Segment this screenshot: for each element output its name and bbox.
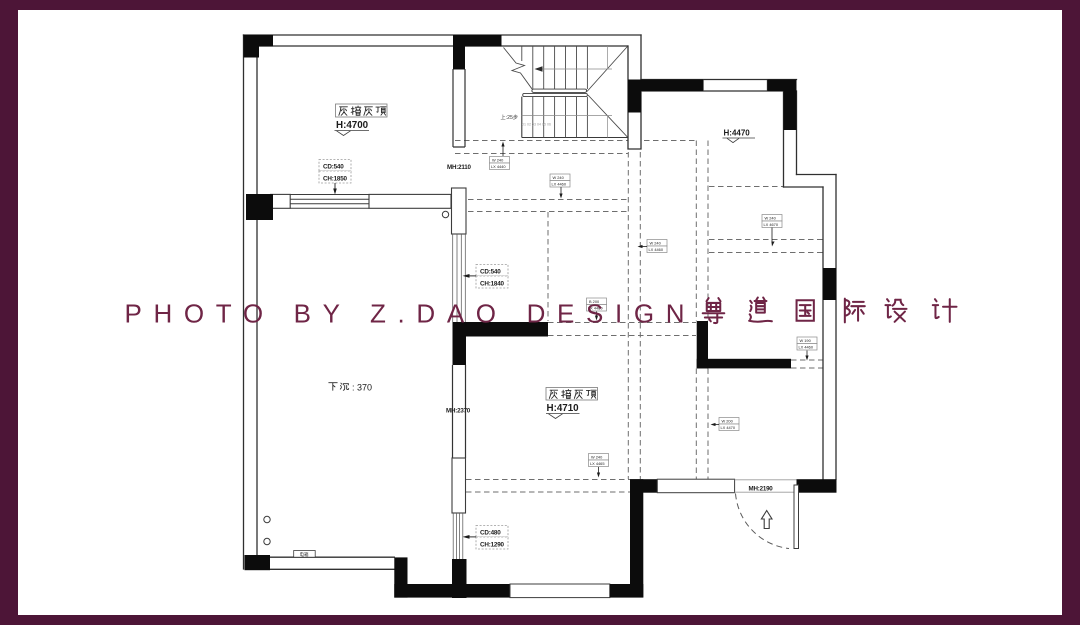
- svg-text:电箱: 电箱: [300, 551, 309, 558]
- svg-text:MH:2110: MH:2110: [447, 164, 471, 171]
- svg-text:W 240: W 240: [492, 158, 504, 163]
- svg-text:H:4710: H:4710: [547, 403, 580, 414]
- svg-text:01 02 03 04 05 06: 01 02 03 04 05 06: [522, 123, 551, 127]
- svg-text:LX 4470: LX 4470: [721, 425, 736, 430]
- svg-text:MH:2190: MH:2190: [749, 486, 774, 493]
- svg-text:W 190: W 190: [800, 338, 812, 343]
- svg-text:W 240: W 240: [553, 175, 565, 180]
- svg-text:LX 4670: LX 4670: [764, 222, 779, 227]
- svg-text:: 370: : 370: [352, 383, 372, 393]
- svg-text:H:4470: H:4470: [724, 129, 751, 138]
- svg-text:LX 4460: LX 4460: [552, 182, 567, 187]
- svg-text:H:4700: H:4700: [336, 120, 369, 131]
- svg-text:MH:2370: MH:2370: [446, 408, 471, 415]
- svg-text:CH:1850: CH:1850: [323, 176, 347, 183]
- svg-text:LX 4460: LX 4460: [799, 345, 814, 350]
- svg-text:W 240: W 240: [591, 455, 603, 460]
- svg-text:CD:480: CD:480: [480, 530, 501, 537]
- svg-text:W 200: W 200: [722, 419, 734, 424]
- svg-text:PHOTO BY Z.DAO DESIGN: PHOTO BY Z.DAO DESIGN: [125, 299, 696, 329]
- svg-text:W 240: W 240: [650, 241, 662, 246]
- svg-text:LX 4440: LX 4440: [491, 164, 506, 169]
- svg-text:CD:540: CD:540: [480, 269, 501, 276]
- svg-text:CD:540: CD:540: [323, 164, 344, 171]
- svg-text:CH:1840: CH:1840: [480, 281, 504, 288]
- svg-text:LX 4465: LX 4465: [590, 461, 605, 466]
- svg-text:CH:1290: CH:1290: [480, 542, 504, 549]
- svg-text:W 240: W 240: [765, 216, 777, 221]
- svg-text:上:25步: 上:25步: [501, 113, 519, 121]
- svg-text:LX 4460: LX 4460: [649, 247, 664, 252]
